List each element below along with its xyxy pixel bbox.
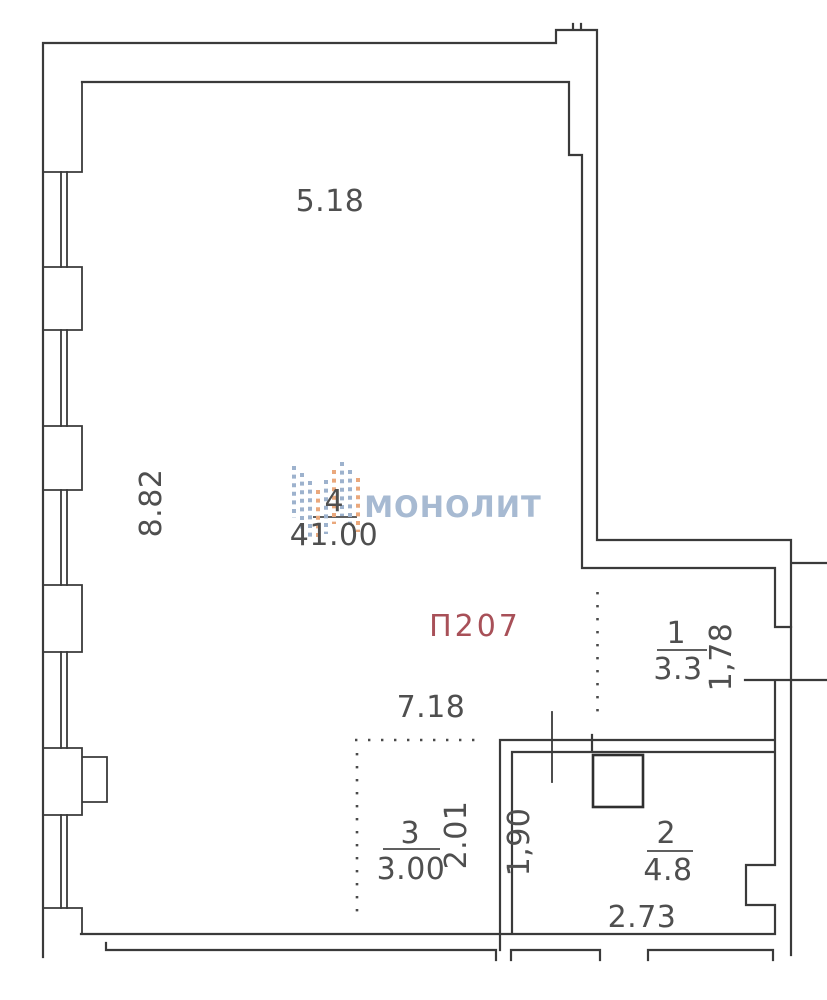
room4-number: 4 <box>324 484 343 519</box>
window-glazing <box>61 172 67 908</box>
bottom-wall-segments <box>106 943 773 960</box>
apartment-number: П207 <box>429 609 521 644</box>
dim-top-width: 5.18 <box>296 184 365 219</box>
room3-number: 3 <box>400 816 419 851</box>
room2-number: 2 <box>656 816 675 851</box>
dim-room2-depth: 1,90 <box>502 808 537 877</box>
dim-room2-width: 2.73 <box>608 900 677 935</box>
vent-shaft-box <box>593 755 643 807</box>
dim-mid-width: 7.18 <box>397 690 466 725</box>
floor-plan-page: МОНОЛИТ П207 4 41.00 1 3.3 2 4.8 3 3.00 … <box>0 0 827 1000</box>
window-frames <box>43 82 107 934</box>
watermark-text: МОНОЛИТ <box>364 490 542 524</box>
room3-area: 3.00 <box>377 852 446 887</box>
dim-room1-depth: 1,78 <box>704 623 739 692</box>
room4-area: 41.00 <box>290 518 378 553</box>
room1-number: 1 <box>666 616 685 651</box>
room2-area: 4.8 <box>643 853 692 888</box>
room1-area: 3.3 <box>653 652 702 687</box>
dim-room3-depth: 2.01 <box>439 801 474 870</box>
floor-plan-drawing: МОНОЛИТ П207 4 41.00 1 3.3 2 4.8 3 3.00 … <box>0 0 827 1000</box>
dim-left-height: 8.82 <box>134 469 169 538</box>
